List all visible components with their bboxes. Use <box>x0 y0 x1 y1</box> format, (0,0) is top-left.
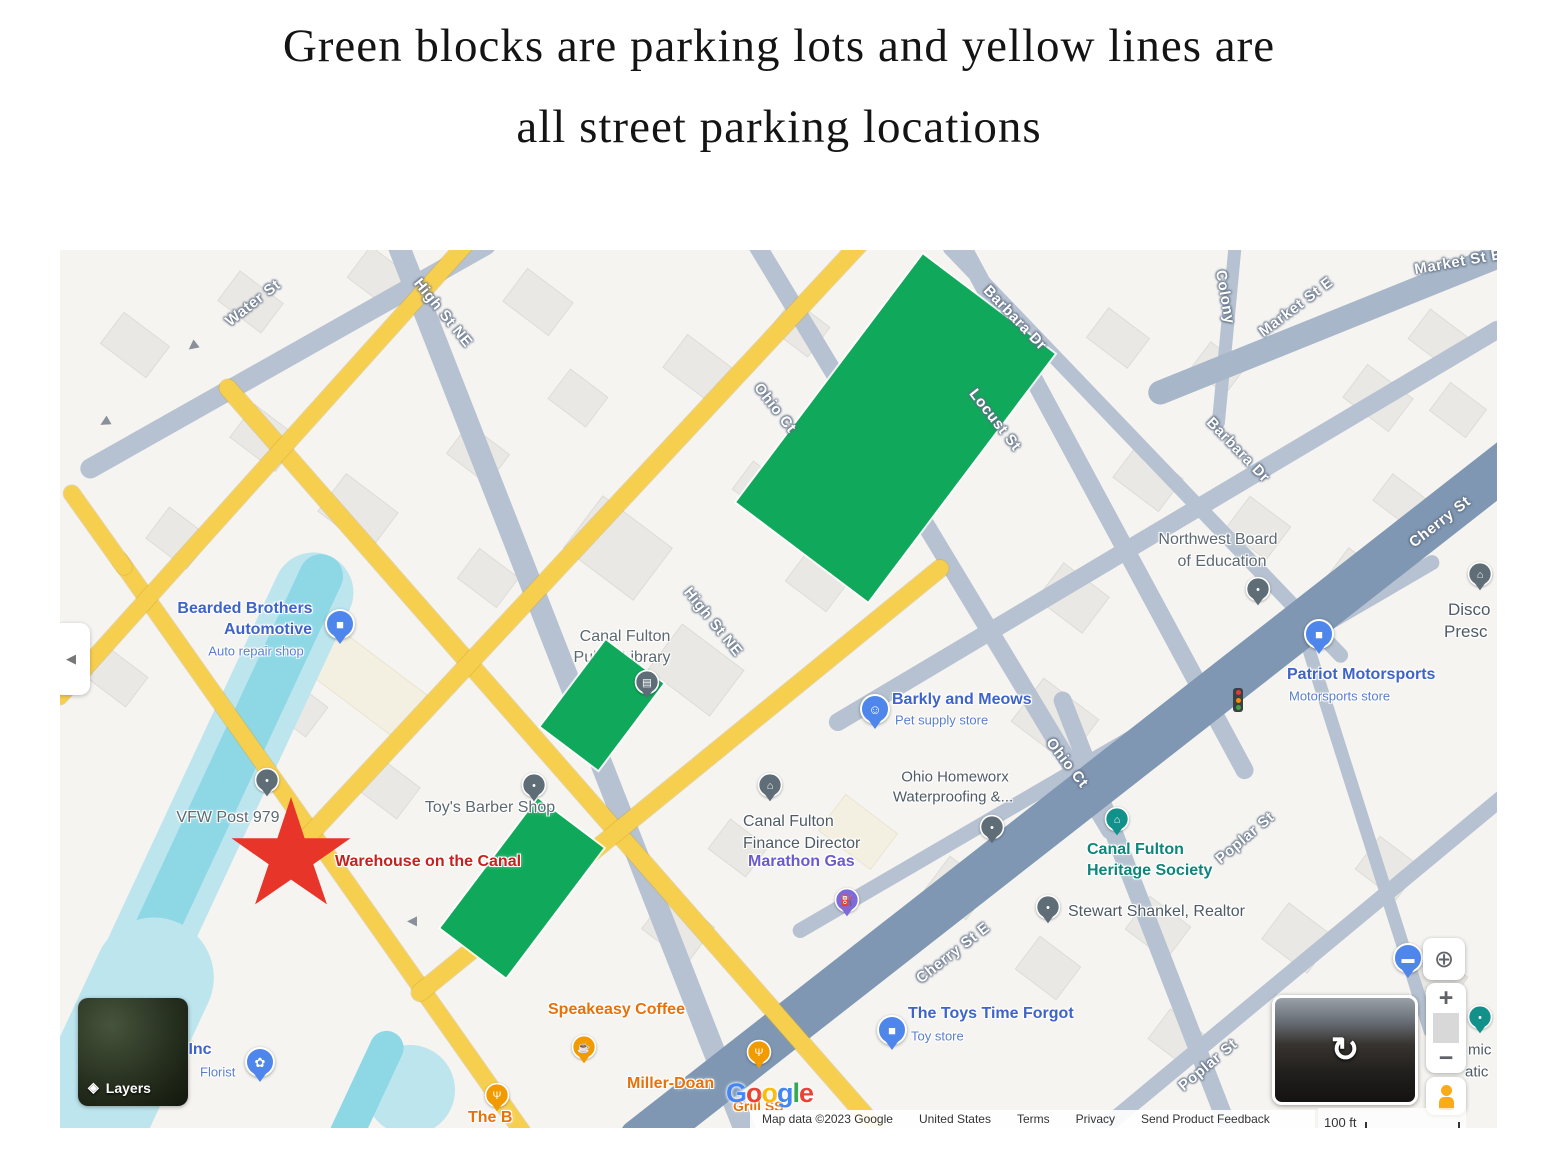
hotel-pin-icon: ▬ <box>1393 943 1423 973</box>
building <box>1429 382 1487 438</box>
bearded-brothers-automotive-icon: ■ <box>325 609 355 639</box>
building <box>1015 936 1082 1001</box>
terms-link[interactable]: Terms <box>1017 1112 1050 1126</box>
zoom-in-button[interactable]: + <box>1426 983 1466 1013</box>
layers-icon: ◈ <box>88 1079 99 1096</box>
google-map[interactable]: Water StHigh St NEHigh St NEOhio CtOhio … <box>60 250 1497 1128</box>
divider <box>1433 1013 1459 1043</box>
canal-fulton-heritage-society-icon: ⌂ <box>1105 807 1130 832</box>
street-parking-line <box>61 482 135 577</box>
google-logo-letter: o <box>746 1078 762 1108</box>
toys-barber-shop-icon: • <box>522 773 547 798</box>
street-label: Ohio Ct <box>750 380 799 436</box>
canal-fulton-public-library-pin[interactable]: ▤ <box>635 670 660 695</box>
building <box>1086 307 1150 369</box>
bearded-brothers-automotive-label[interactable]: Auto repair shop <box>208 644 303 659</box>
bearded-brothers-automotive-pin[interactable]: ■ <box>325 609 355 639</box>
page: Green blocks are parking lots and yellow… <box>0 0 1558 1168</box>
canal-fulton-heritage-society-label[interactable]: Heritage Society <box>1087 862 1212 880</box>
discovery-preschool-cut-label[interactable]: Disco <box>1448 600 1491 620</box>
street-label: Poplar St <box>1212 809 1278 868</box>
building <box>100 312 170 379</box>
the-toys-time-forgot-icon: ■ <box>877 1015 907 1045</box>
barkly-and-meows-pin[interactable]: ☺ <box>860 694 890 724</box>
ohio-homeworx-label[interactable]: Waterproofing &... <box>893 789 1013 806</box>
privacy-link[interactable]: Privacy <box>1076 1112 1115 1126</box>
barkly-and-meows-label[interactable]: Pet supply store <box>895 713 988 728</box>
title-line-1: Green blocks are parking lots and yellow… <box>0 6 1558 87</box>
ohio-homeworx-label[interactable]: Ohio Homeworx <box>901 769 1009 786</box>
northwest-board-of-education-label[interactable]: of Education <box>1178 553 1267 571</box>
canal-fulton-finance-director-label[interactable]: Finance Director <box>743 835 860 853</box>
speakeasy-coffee-label[interactable]: Speakeasy Coffee <box>548 1001 685 1019</box>
label-fragment-right-edge-pin[interactable]: • <box>1468 1005 1493 1030</box>
northwest-board-of-education-icon: • <box>1246 577 1271 602</box>
patriot-motorsports-icon: ■ <box>1304 619 1334 649</box>
chevron-left-icon: ◀ <box>66 651 76 667</box>
country-label: United States <box>919 1112 991 1126</box>
zoom-controls: + − <box>1426 983 1466 1073</box>
patriot-motorsports-label[interactable]: Patriot Motorsports <box>1287 666 1435 684</box>
label-fragment-right-edge-label[interactable]: mic <box>1468 1042 1491 1059</box>
canal-fulton-finance-director-pin[interactable]: ⌂ <box>758 773 783 798</box>
feedback-link[interactable]: Send Product Feedback <box>1141 1112 1270 1126</box>
canal-fulton-finance-director-icon: ⌂ <box>758 773 783 798</box>
patriot-motorsports-label[interactable]: Motorsports store <box>1289 689 1390 704</box>
warehouse-on-the-canal-label[interactable]: Warehouse on the Canal <box>335 853 521 871</box>
the-toys-time-forgot-label[interactable]: Toy store <box>911 1029 964 1044</box>
page-title: Green blocks are parking lots and yellow… <box>0 6 1558 168</box>
title-line-2: all street parking locations <box>0 87 1558 168</box>
miller-doan-pin[interactable]: Ψ <box>747 1040 772 1065</box>
building <box>502 268 574 336</box>
bearded-brothers-automotive-label[interactable]: Automotive <box>224 621 312 639</box>
northwest-board-of-education-label[interactable]: Northwest Board <box>1158 531 1277 549</box>
canal-fulton-heritage-society-pin[interactable]: ⌂ <box>1105 807 1130 832</box>
discovery-preschool-cut-pin[interactable]: ⌂ <box>1468 562 1493 587</box>
my-location-button[interactable]: ⊕ <box>1423 938 1465 980</box>
barkly-and-meows-label[interactable]: Barkly and Meows <box>892 691 1032 709</box>
compass-icon: ⊕ <box>1434 945 1454 974</box>
scale-label: 100 ft <box>1324 1115 1357 1128</box>
label-fragment-right-edge-icon: • <box>1468 1005 1493 1030</box>
marathon-gas-icon: ⛽ <box>835 888 860 913</box>
vfw-post-979-label[interactable]: VFW Post 979 <box>176 809 279 827</box>
map-data-credit: Map data ©2023 Google <box>762 1112 893 1126</box>
canal-fulton-heritage-society-label[interactable]: Canal Fulton <box>1087 841 1184 859</box>
one-way-arrow-icon: ▶ <box>184 338 202 357</box>
one-way-arrow-icon: ▶ <box>97 414 114 433</box>
traffic-light-icon <box>1233 688 1243 712</box>
ohio-homeworx-icon: • <box>980 815 1005 840</box>
miller-doan-label[interactable]: Miller-Doan <box>627 1075 714 1093</box>
attribution-bar: Map data ©2023 Google United States Term… <box>750 1110 1315 1128</box>
canal-fulton-public-library-label[interactable]: Canal Fulton <box>580 628 671 646</box>
marathon-gas-label[interactable]: Marathon Gas <box>748 853 855 871</box>
google-logo-letter: g <box>777 1078 793 1108</box>
barkly-and-meows-icon: ☺ <box>860 694 890 724</box>
vfw-post-979-pin[interactable]: • <box>255 768 280 793</box>
side-panel-collapse-button[interactable]: ◀ <box>60 623 90 695</box>
google-logo-letter: e <box>799 1078 813 1108</box>
the-toys-time-forgot-label[interactable]: The Toys Time Forgot <box>908 1005 1074 1023</box>
discovery-preschool-cut-icon: ⌂ <box>1468 562 1493 587</box>
bearded-brothers-automotive-label[interactable]: Bearded Brothers <box>177 600 312 618</box>
scale-bar: 100 ft <box>1318 1108 1466 1128</box>
stewart-shankel-realtor-icon: • <box>1036 895 1061 920</box>
layers-button[interactable]: ◈Layers <box>78 998 188 1106</box>
scale-line <box>1365 1122 1460 1128</box>
toys-barber-shop-pin[interactable]: • <box>522 773 547 798</box>
zoom-out-button[interactable]: − <box>1426 1043 1466 1073</box>
the-toys-time-forgot-pin[interactable]: ■ <box>877 1015 907 1045</box>
restaurant-cut-icon: Ψ <box>485 1083 510 1108</box>
google-logo-letter: o <box>762 1078 778 1108</box>
northwest-board-of-education-pin[interactable]: • <box>1246 577 1271 602</box>
vfw-post-979-icon: • <box>255 768 280 793</box>
layers-label: Layers <box>106 1080 151 1096</box>
miller-doan-icon: Ψ <box>747 1040 772 1065</box>
hotel-pin-pin[interactable]: ▬ <box>1393 943 1423 973</box>
florist-inc-cut-pin[interactable]: ✿ <box>245 1047 275 1077</box>
street-view-thumbnail[interactable]: ↻ <box>1272 995 1418 1105</box>
pegman-icon <box>1441 1085 1452 1096</box>
restaurant-cut-pin[interactable]: Ψ <box>485 1083 510 1108</box>
label-fragment-right-edge-label[interactable]: atic <box>1465 1064 1488 1081</box>
discovery-preschool-cut-label[interactable]: Presc <box>1444 622 1487 642</box>
canal-fulton-finance-director-label[interactable]: Canal Fulton <box>743 813 834 831</box>
speakeasy-coffee-pin[interactable]: ☕ <box>572 1035 597 1060</box>
canal-fulton-public-library-icon: ▤ <box>635 670 660 695</box>
patriot-motorsports-pin[interactable]: ■ <box>1304 619 1334 649</box>
stewart-shankel-realtor-pin[interactable]: • <box>1036 895 1061 920</box>
florist-inc-cut-icon: ✿ <box>245 1047 275 1077</box>
rotate-icon: ↻ <box>1331 1030 1360 1070</box>
google-logo: Google <box>726 1078 813 1109</box>
building <box>547 368 608 427</box>
stewart-shankel-realtor-label[interactable]: Stewart Shankel, Realtor <box>1068 903 1245 921</box>
ohio-homeworx-pin[interactable]: • <box>980 815 1005 840</box>
florist-inc-cut-label[interactable]: Florist <box>200 1065 235 1080</box>
google-logo-letter: G <box>726 1078 746 1108</box>
one-way-arrow-icon: ▶ <box>407 914 417 930</box>
speakeasy-coffee-icon: ☕ <box>572 1035 597 1060</box>
marathon-gas-pin[interactable]: ⛽ <box>835 888 860 913</box>
